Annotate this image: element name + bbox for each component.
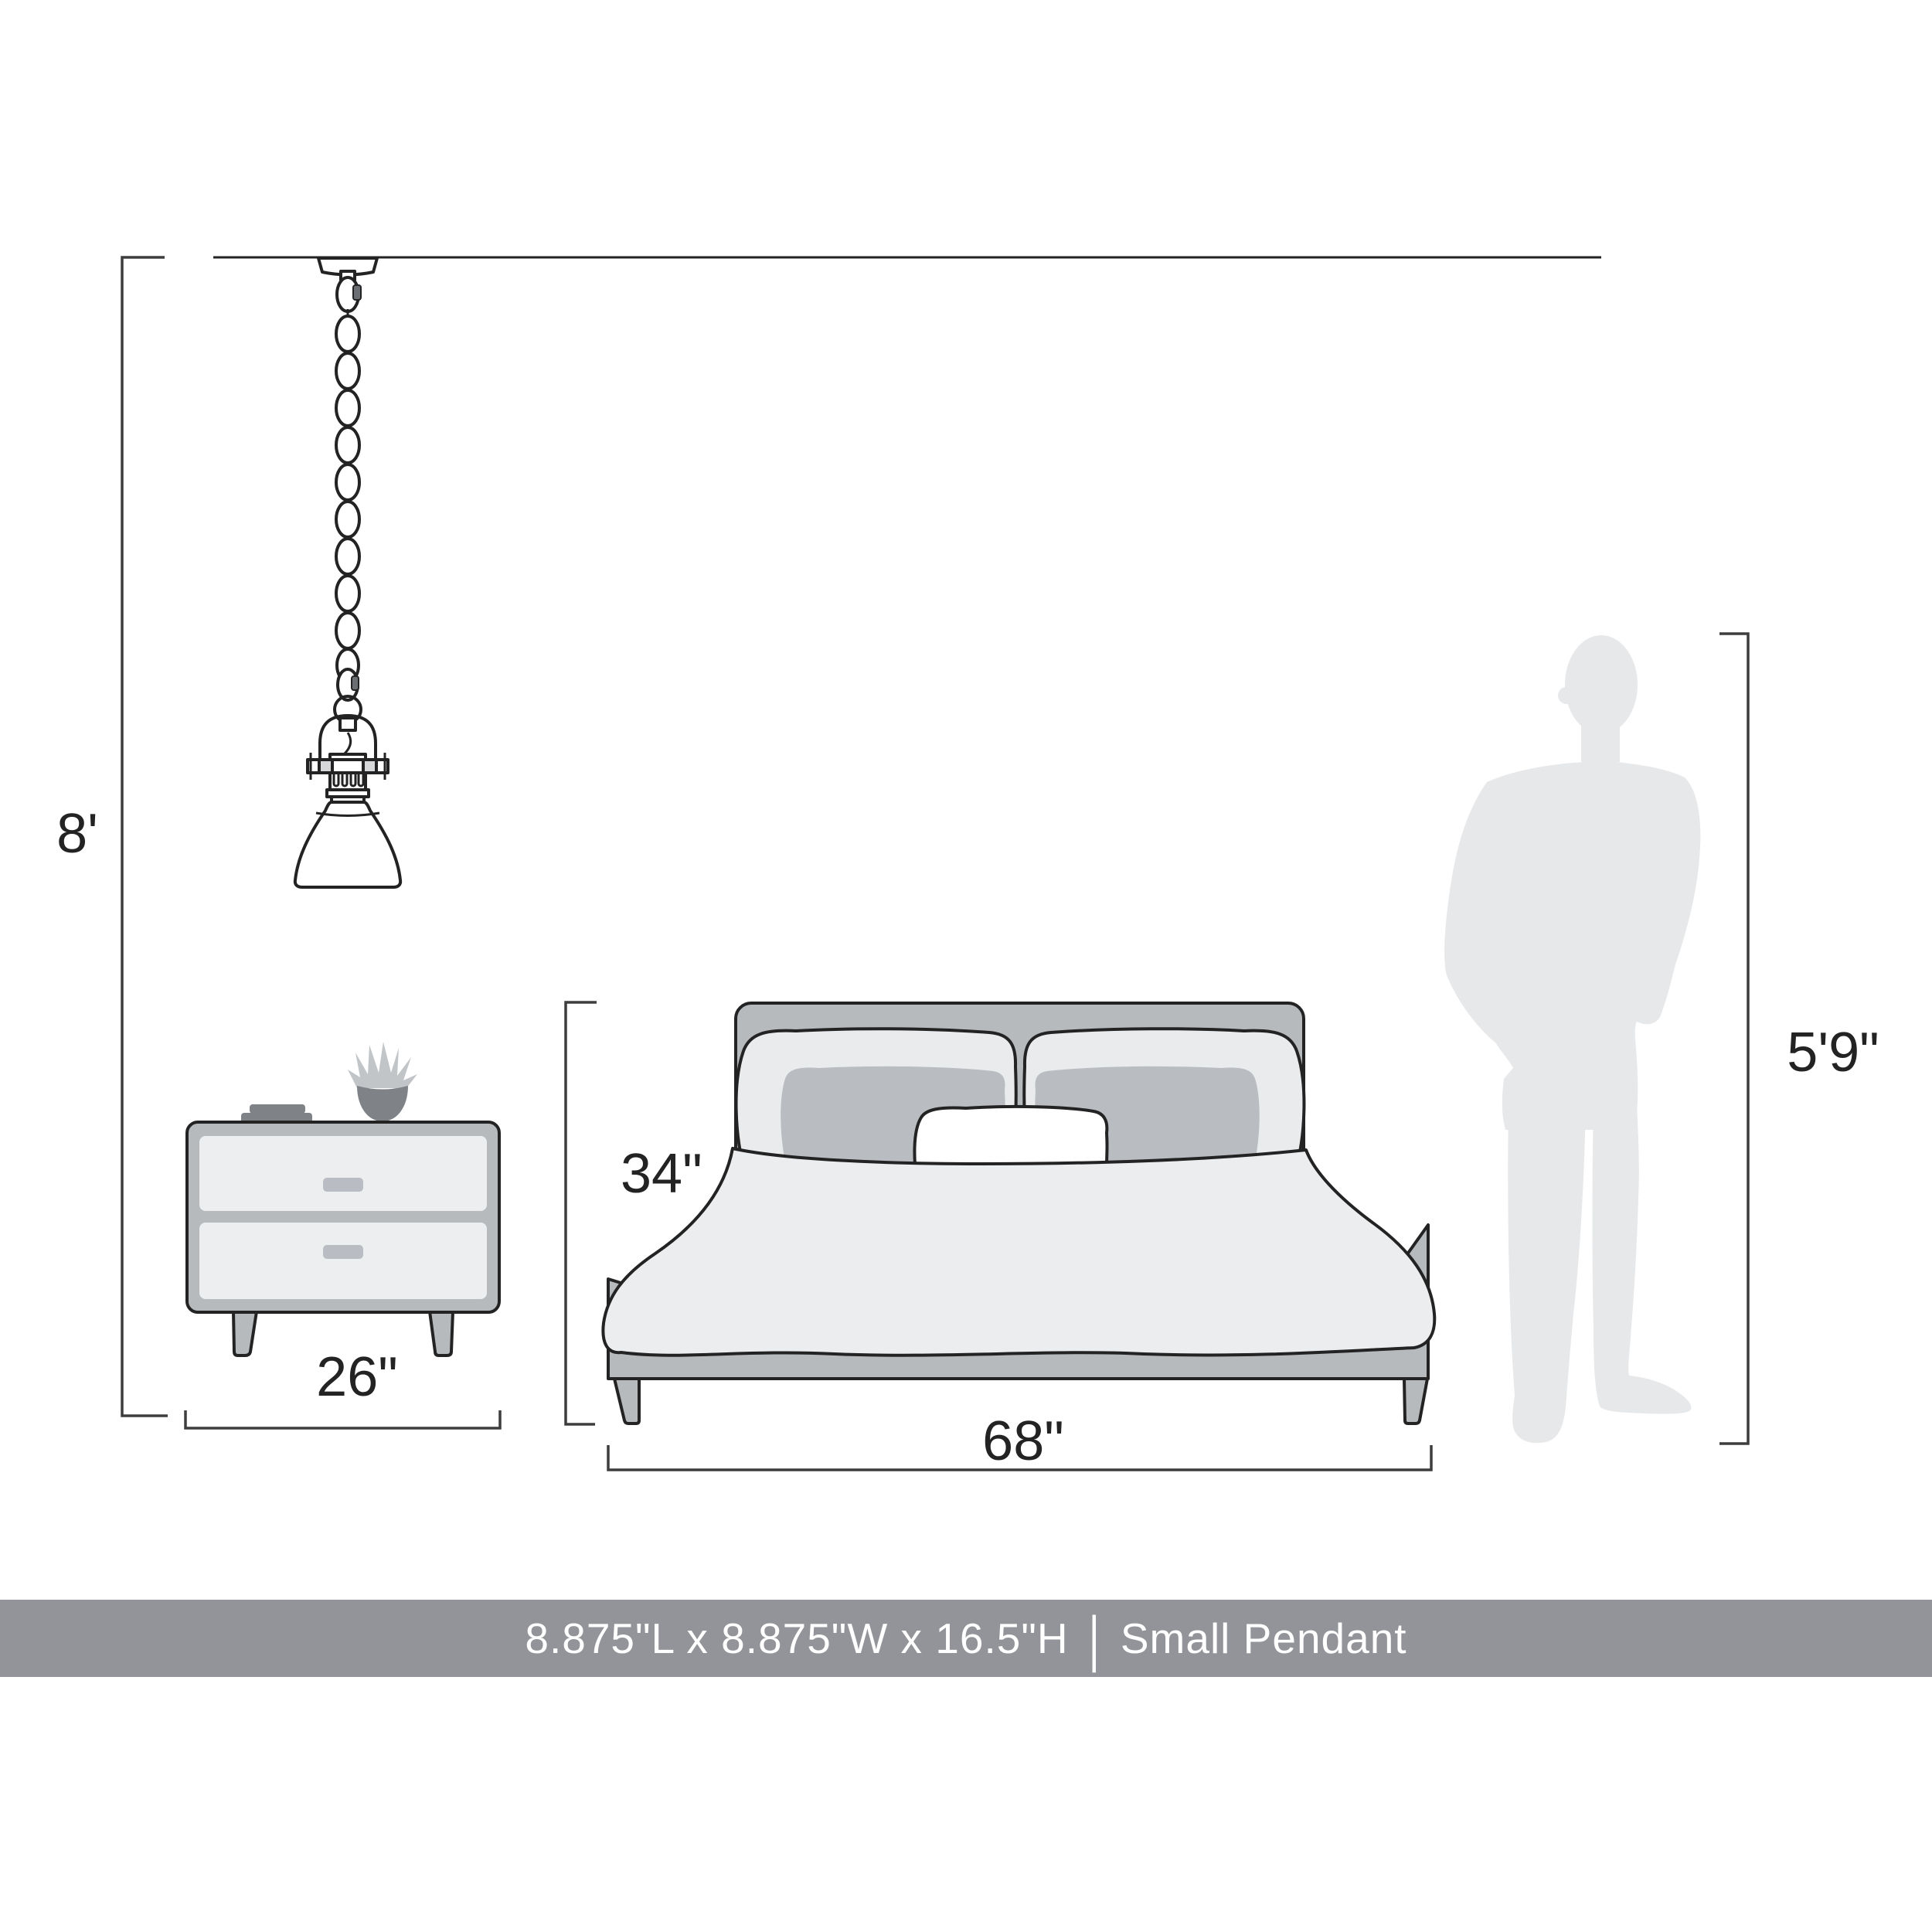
ceiling-height-bracket [122,257,168,1416]
person-height-bracket [1719,634,1748,1444]
nightstand-drawer-bottom [199,1223,487,1299]
dimension-person-height: 5'9" [1719,634,1879,1444]
person-silhouette-icon [1444,635,1700,1443]
dimension-bed-width: 68" [608,1410,1431,1472]
nightstand-icon [187,1042,499,1355]
bed-height-label: 34" [621,1143,702,1205]
pendant-bottom-connector-sleeve [352,676,359,690]
nightstand-width-bracket [185,1410,500,1428]
drawer-handle-bottom [323,1245,363,1259]
bed-leg-right [1404,1379,1427,1423]
banner-product-name: Small Pendant [1121,1614,1407,1663]
drawer-handle-top [323,1178,363,1192]
banner-divider: | [1089,1603,1100,1675]
pendant-top-connector-sleeve [353,285,361,300]
person-leg-right [1593,1105,1692,1413]
plant-leaves [348,1042,417,1088]
pendant-light-icon [295,258,400,887]
banner-dimensions-text: 8.875"L x 8.875"W x 16.5"H [525,1614,1068,1663]
bed-leg-left [614,1379,639,1423]
nightstand-drawer-top [199,1136,487,1211]
books-icon [241,1104,312,1123]
pendant-crossbar-block-left [319,760,332,773]
dimension-nightstand-width: 26" [185,1346,500,1428]
nightstand-width-label: 26" [316,1346,398,1408]
bed-icon [603,1003,1434,1423]
product-dimensions-banner: 8.875"L x 8.875"W x 16.5"H | Small Penda… [0,1600,1932,1677]
person-height-label: 5'9" [1787,1022,1879,1083]
bed-width-label: 68" [982,1410,1064,1472]
plant-pot [357,1086,408,1121]
pendant-yoke-nut [340,718,355,730]
pendant-chain [336,309,359,696]
plant-icon [348,1042,417,1121]
nightstand-leg-left [233,1311,257,1355]
ceiling-height-label: 8' [56,803,98,865]
person-torso [1444,762,1700,1130]
product-scale-diagram: 8' [0,0,1932,1932]
dimension-ceiling-height: 8' [56,257,168,1416]
person-leg-left [1508,1105,1586,1443]
pendant-crossbar-block-right [363,760,376,773]
bed-height-bracket [566,1002,597,1424]
bed-duvet [603,1148,1434,1355]
nightstand-leg-right [430,1311,453,1355]
